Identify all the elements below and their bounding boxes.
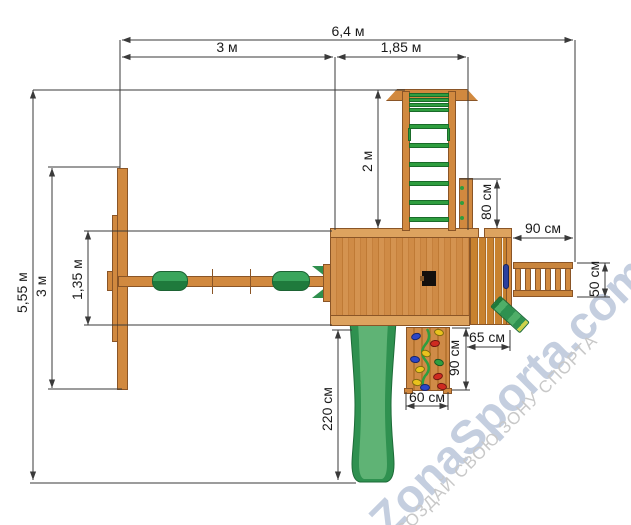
entry-ladder-rung (555, 268, 561, 291)
ladder-rung (409, 108, 449, 112)
entry-ladder-rung (545, 268, 551, 291)
entry-ladder-rung (565, 268, 571, 291)
ladder-rung (409, 124, 449, 129)
dim-rock-wall-width-label: 60 см (409, 389, 445, 405)
swing-seat (272, 271, 310, 291)
ladder-rung (409, 181, 449, 186)
rail-clip (408, 128, 411, 141)
dim-entry-ladder-length-label: 90 см (525, 220, 561, 236)
ladder-rung (409, 162, 449, 167)
ladder-rail-left (402, 91, 410, 231)
swing-hanger-tick (212, 269, 213, 294)
climbing-hold (420, 384, 430, 391)
ladder-rung (409, 98, 449, 102)
dim-deck-offset-label: 1,35 м (69, 259, 85, 300)
ladder-rung (409, 217, 449, 222)
roof-peak-cap (422, 271, 436, 286)
ladder-rung (409, 143, 449, 148)
dim-rock-wall-offset-label: 65 см (469, 329, 505, 345)
dim-left-section-label: 3 м (216, 39, 237, 55)
dim-total-width-label: 6,4 м (332, 23, 365, 39)
swing-seat (152, 271, 188, 291)
board-peg (460, 201, 464, 205)
playground-top-view-diagram: ZonaSporta.com СОЗДАЙ СВОЮ ЗОНУ СПОРТА (0, 0, 631, 525)
slide-bed (358, 322, 388, 479)
swing-hanger-tick (250, 269, 251, 294)
slide (350, 321, 396, 482)
ladder-rung (409, 200, 449, 205)
board-peg (460, 186, 464, 190)
entry-ladder-rung (525, 268, 531, 291)
entry-ladder-rail-top (513, 262, 573, 269)
platform-deck (330, 237, 470, 316)
grab-handle (503, 264, 509, 289)
entry-ladder-rung (535, 268, 541, 291)
dim-slide-length-label: 220 см (319, 387, 335, 431)
ladder-rung (409, 93, 449, 97)
board-peg (460, 216, 464, 220)
dim-climb-ladder-label: 2 м (359, 151, 375, 172)
rail-clip (447, 128, 450, 141)
dim-right-section-label: 1,85 м (381, 39, 422, 55)
ladder-rung (409, 103, 449, 107)
dim-side-board-label: 80 см (478, 184, 494, 220)
roof-cap-notch (420, 276, 424, 281)
entry-ladder-rung (515, 268, 521, 291)
ladder-rail-right (448, 91, 456, 231)
rock-wall-foot (404, 388, 413, 394)
dim-total-depth-label: 5,55 м (14, 272, 30, 313)
deck-bottom-edge (330, 315, 470, 326)
dim-swing-depth-label: 3 м (33, 276, 49, 297)
